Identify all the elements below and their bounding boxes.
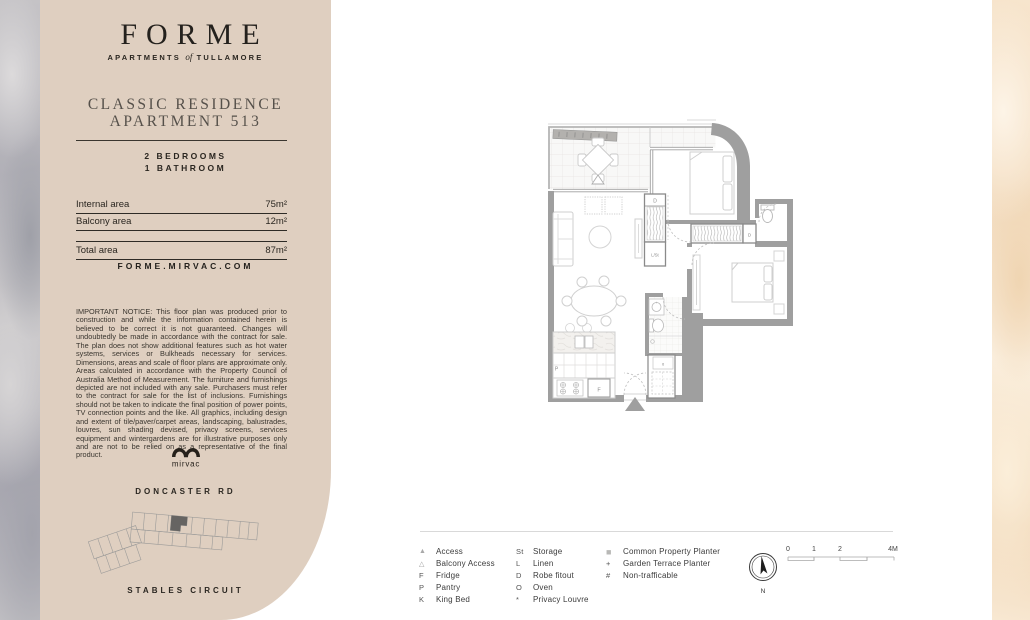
balcony-access-triangle-icon: △ bbox=[419, 560, 436, 568]
legend-label: Balcony Access bbox=[436, 559, 495, 568]
balcony-area-label: Balcony area bbox=[76, 216, 131, 227]
wc bbox=[761, 205, 774, 223]
fridge-letter-icon: F bbox=[419, 571, 436, 580]
legend-item-balcony-access: △ Balcony Access bbox=[419, 558, 495, 570]
linen-letter-icon: L bbox=[516, 559, 533, 568]
cooktop-icon bbox=[557, 380, 583, 396]
king-bed-letter-icon: K bbox=[419, 595, 436, 604]
site-right-wing bbox=[130, 512, 258, 553]
right-marble-strip bbox=[992, 0, 1030, 620]
legend-label: Fridge bbox=[436, 571, 460, 580]
legend-label: Robe fitout bbox=[533, 571, 574, 580]
balcony-area-value: 12m² bbox=[265, 216, 287, 227]
legend-column-1: ▲ Access △ Balcony Access F Fridge P Pan… bbox=[419, 546, 495, 605]
legend-label: Pantry bbox=[436, 583, 460, 592]
bedroom-2 bbox=[693, 251, 784, 314]
total-area-value: 87m² bbox=[265, 245, 287, 256]
sink-icon bbox=[575, 336, 584, 348]
residence-type: CLASSIC RESIDENCE bbox=[40, 96, 331, 113]
site-key-plan bbox=[75, 500, 265, 582]
tagline-prefix: APARTMENTS bbox=[107, 53, 181, 62]
table-row-balcony-area: Balcony area 12m² bbox=[76, 214, 287, 231]
pantry-letter-icon: P bbox=[419, 583, 436, 592]
legend-column-2: St Storage L Linen D Robe fitout O Oven … bbox=[516, 546, 589, 605]
basin-icon bbox=[652, 303, 661, 312]
scale-1: 1 bbox=[812, 546, 816, 553]
legend-item-privacy-louvre: * Privacy Louvre bbox=[516, 593, 589, 605]
legend-label: Oven bbox=[533, 583, 553, 592]
storage-letter-icon: St bbox=[516, 547, 533, 556]
scale-bar: 0 1 2 4M bbox=[781, 542, 909, 566]
bathrooms-count: 1 BATHROOM bbox=[40, 162, 331, 174]
robe-letter-icon: D bbox=[516, 571, 533, 580]
oven-letter-icon: O bbox=[516, 583, 533, 592]
ottoman bbox=[605, 197, 622, 214]
mirvac-wordmark: mirvac bbox=[171, 460, 199, 469]
access-triangle-icon: ▲ bbox=[419, 548, 436, 555]
hash-icon: # bbox=[606, 571, 623, 580]
internal-area-value: 75m² bbox=[265, 199, 287, 210]
planter-square-icon: ■ bbox=[606, 547, 623, 557]
scale-4m: 4M bbox=[888, 546, 898, 553]
tagline-suffix: TULLAMORE bbox=[197, 53, 264, 62]
ottoman bbox=[585, 197, 602, 214]
plus-icon: + bbox=[606, 559, 623, 568]
title-divider bbox=[76, 140, 287, 141]
legend-item-access: ▲ Access bbox=[419, 546, 495, 558]
legend-label: Linen bbox=[533, 559, 554, 568]
kitchen bbox=[553, 324, 615, 399]
bedroom-1 bbox=[690, 152, 734, 214]
legend-label: Privacy Louvre bbox=[533, 595, 589, 604]
legend-item-pantry: P Pantry bbox=[419, 581, 495, 593]
legend-label: Access bbox=[436, 547, 463, 556]
internal-area-label: Internal area bbox=[76, 199, 129, 210]
mirvac-m-icon: mirvac bbox=[166, 444, 206, 470]
legend-label: Common Property Planter bbox=[623, 547, 720, 556]
legend-column-3: ■ Common Property Planter + Garden Terra… bbox=[606, 546, 720, 581]
road-label-stables: STABLES CIRCUIT bbox=[40, 586, 331, 595]
bathroom bbox=[649, 297, 682, 353]
floorplan-svg: D L/St D P F o bbox=[540, 110, 806, 412]
table-row-internal-area: Internal area 75m² bbox=[76, 197, 287, 214]
access-triangle-icon bbox=[625, 397, 645, 411]
legend-item-common-property-planter: ■ Common Property Planter bbox=[606, 546, 720, 558]
legend-item-garden-terrace-planter: + Garden Terrace Planter bbox=[606, 558, 720, 570]
linen-store-label: L/St bbox=[651, 253, 659, 258]
legal-notice: IMPORTANT NOTICE: This floor plan was pr… bbox=[76, 308, 287, 460]
legend-item-linen: L Linen bbox=[516, 558, 589, 570]
legend-item-non-trafficable: # Non-trafficable bbox=[606, 570, 720, 582]
bedrooms-count: 2 BEDROOMS bbox=[40, 150, 331, 162]
residence-title: CLASSIC RESIDENCE APARTMENT 513 bbox=[40, 96, 331, 130]
legend-item-storage: St Storage bbox=[516, 546, 589, 558]
asterisk-icon: * bbox=[516, 595, 533, 604]
robe-label: D bbox=[653, 199, 657, 205]
brand-tagline: APARTMENTS of TULLAMORE bbox=[40, 52, 331, 62]
brand-logo: FORME bbox=[40, 18, 340, 52]
toilet-icon bbox=[653, 319, 664, 332]
legend-item-robe-fitout: D Robe fitout bbox=[516, 570, 589, 582]
bed-bath-stats: 2 BEDROOMS 1 BATHROOM bbox=[40, 150, 331, 174]
apartment-number: APARTMENT 513 bbox=[40, 113, 331, 130]
scale-2: 2 bbox=[838, 546, 842, 553]
legend-label: King Bed bbox=[436, 595, 470, 604]
scale-0: 0 bbox=[786, 546, 790, 553]
north-label: N bbox=[761, 588, 766, 595]
table-row-total-area: Total area 87m² bbox=[76, 241, 287, 260]
legend-label: Storage bbox=[533, 547, 562, 556]
north-compass-icon: N bbox=[746, 550, 780, 598]
tagline-of: of bbox=[185, 52, 192, 62]
dining-table bbox=[571, 286, 617, 316]
site-left-wing bbox=[88, 526, 146, 574]
left-marble-strip bbox=[0, 0, 40, 620]
site-highlight-unit bbox=[170, 515, 187, 531]
mirvac-logo: mirvac bbox=[40, 444, 331, 475]
area-table: Internal area 75m² Balcony area 12m² Tot… bbox=[76, 197, 287, 260]
legend-label: Non-trafficable bbox=[623, 571, 678, 580]
total-area-label: Total area bbox=[76, 245, 118, 256]
coffee-table bbox=[589, 226, 611, 248]
legend-item-oven: O Oven bbox=[516, 581, 589, 593]
legend-label: Garden Terrace Planter bbox=[623, 559, 710, 568]
website-link[interactable]: FORME.MIRVAC.COM bbox=[40, 261, 331, 271]
legend-divider bbox=[420, 531, 893, 532]
floorplan-page: FORME APARTMENTS of TULLAMORE CLASSIC RE… bbox=[0, 0, 1030, 620]
common-boundary-lines bbox=[548, 120, 716, 124]
living-dining bbox=[553, 197, 642, 326]
road-label-doncaster: DONCASTER RD bbox=[40, 487, 331, 496]
legend-item-fridge: F Fridge bbox=[419, 570, 495, 582]
info-panel: FORME APARTMENTS of TULLAMORE CLASSIC RE… bbox=[40, 0, 331, 620]
legend-item-king-bed: K King Bed bbox=[419, 593, 495, 605]
